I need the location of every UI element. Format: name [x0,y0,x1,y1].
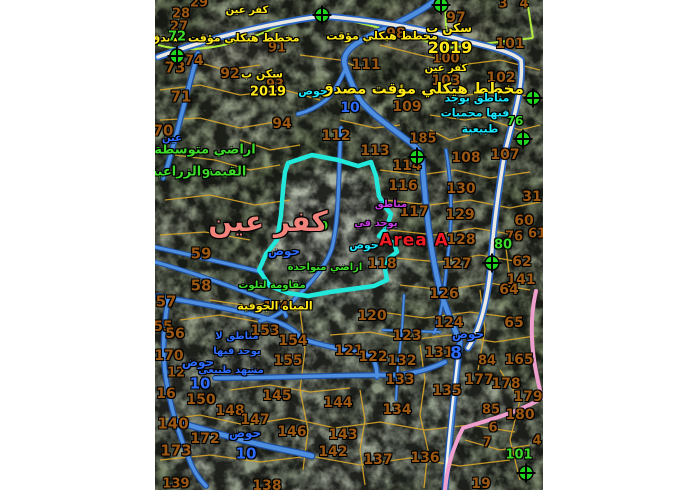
parcel-number: 100 [432,53,459,66]
map-label: 9 [320,220,328,232]
parcel-number: 137 [363,453,392,467]
parcel-number: 142 [318,445,347,459]
land-note-label: مقاومة لتلوث [238,281,305,291]
basin-label: حوض [229,427,261,439]
landscape-note-label: مناطق لا [215,332,258,342]
zoning-label: سكن ب [241,69,283,80]
parcel-number: 130 [446,182,475,196]
parcel-number: 84 [478,355,496,368]
land-note-label: اراضي متواجدة [288,263,363,273]
map-label: 101 [505,449,532,462]
basin-number: 10 [236,447,257,462]
parcel-number: 185 [409,133,436,146]
parcel-number: 12 [167,367,185,380]
survey-marker-icon [516,463,536,483]
nature-reserve-label: طبيعية [462,124,499,135]
parcel-number: 7 [482,437,491,450]
groundwater-label: المياه الجوفية [237,301,312,312]
parcel-number: 60 [514,214,533,228]
parcel-number: 103 [431,74,460,88]
basin-number: 10 [190,377,211,392]
parcel-number: 85 [482,404,500,417]
plan-year-label: 2019 [428,40,473,56]
parcel-number: 76 [505,231,523,244]
parcel-number: 150 [186,393,215,407]
parcel-number: 112 [321,129,350,143]
basin-label: حوض [452,328,484,340]
parcel-number: 128 [446,233,475,247]
parcel-number: 136 [410,451,439,465]
parcel-number: 139 [162,478,189,490]
agri-value-label: القيمة الزراعية [155,166,246,179]
parcel-number: 178 [491,377,520,391]
landscape-note-label: مشهد طبيعي [198,366,264,376]
parcel-number: 109 [392,100,421,114]
village-name-small: كفر عين [226,6,269,16]
survey-marker-icon [312,5,332,25]
parcel-number: 19 [471,477,490,490]
parcel-number: 140 [157,417,188,432]
survey-marker-icon [482,253,502,273]
map-label: 80 [494,239,512,252]
parcel-number: 55 [155,320,173,334]
basin-label: حوض [182,356,214,368]
zone-note-label: مناطق [375,200,407,210]
zone-note-label: يوجد في [354,219,397,229]
parcel-number: 129 [445,208,474,222]
map-labels-layer: 2928277374717091929394979810010110210334… [155,0,543,490]
parcel-number: 108 [451,151,480,165]
parcel-number: 92 [220,67,239,81]
parcel-number: 114 [392,159,421,173]
map-label: 76 [507,115,524,127]
parcel-number: 135 [432,384,461,398]
parcel-number: 120 [357,309,386,323]
parcel-number: 94 [272,117,291,131]
map-viewport: 2928277374717091929394979810010110210334… [0,0,700,490]
parcel-number: 121 [334,344,363,358]
survey-marker-icon [407,147,427,167]
basin-number: 8 [450,346,462,363]
parcel-number: 71 [171,90,192,105]
parcel-number: 101 [495,37,524,51]
parcel-number: 59 [191,247,212,262]
satellite-map[interactable]: 2928277374717091929394979810010110210334… [155,0,543,490]
basin-number: 10 [340,101,359,115]
parcel-number: 91 [268,42,286,55]
landscape-note-label: يوجد فيها [213,347,260,357]
parcel-number: 29 [190,0,208,10]
village-name-small: كفر عين [425,64,468,74]
parcel-number: 144 [323,396,352,410]
parcel-number: 70 [155,124,173,139]
map-label: 72 [168,31,186,44]
parcel-number: 16 [156,387,175,401]
parcel-number: 116 [388,179,417,193]
parcel-number: 122 [358,350,387,364]
parcel-number: 179 [513,390,542,404]
nature-reserve-label: مناطق يوجد [445,93,510,104]
parcel-number: 170 [155,349,184,363]
parcel-number: 124 [434,316,463,330]
parcel-number: 6 [488,422,497,435]
survey-marker-icon [431,0,451,15]
plan-status-label: مخطط هيكلي مؤقت مصدق [155,33,300,44]
parcel-number: 4 [519,0,528,11]
parcel-number: 131 [424,346,453,360]
survey-marker-icon [167,46,187,66]
parcel-number: 143 [328,428,357,442]
parcel-number: 148 [215,404,244,418]
parcel-number: 27 [170,21,188,34]
parcel-number: 123 [392,329,421,343]
parcel-number: 58 [191,279,212,294]
parcel-number: 172 [190,432,219,446]
parcel-number: 73 [165,61,186,76]
map-label: عين [162,134,182,144]
parcel-number: 134 [382,403,411,417]
parcel-number: 146 [277,425,306,439]
parcel-number: 3 [498,0,507,11]
plan-status-label: مخطط هيكلي مؤقت مصدق [320,82,524,97]
parcel-number: 153 [250,324,279,338]
parcel-number: 56 [165,327,184,341]
parcel-number: 145 [262,389,291,403]
basin-label: حوض [298,86,328,97]
survey-marker-icon [513,129,533,149]
map-label: 9 [202,168,210,180]
parcel-number: 31 [522,190,541,204]
parcel-number: 4 [532,435,541,448]
plan-year-label: 2019 [250,86,286,99]
basin-label: حوض [349,240,379,251]
survey-marker-icon [523,88,543,108]
parcel-number: 126 [429,287,458,301]
parcel-number: 107 [490,148,519,162]
parcel-number: 102 [486,71,515,85]
parcel-number: 138 [252,479,281,490]
parcel-number: 118 [367,257,396,271]
parcel-number: 97 [446,11,465,25]
parcel-number: 74 [184,54,203,68]
agri-value-label: اراضي متوسطة [155,144,256,157]
parcel-number: 117 [399,205,428,219]
parcel-number: 155 [273,354,302,368]
parcel-number: 64 [499,283,518,297]
parcel-number: 62 [512,255,531,269]
parcel-number: 57 [156,295,177,310]
village-name-label: كفر عين [208,208,327,236]
parcel-number: 93 [266,79,284,92]
parcel-number: 111 [351,58,380,72]
parcel-number: 177 [464,373,493,387]
parcel-number: 61 [528,228,543,241]
parcel-number: 98 [386,27,405,41]
parcel-number: 132 [387,354,416,368]
parcel-number: 173 [160,444,191,459]
nature-reserve-label: فيها محميات [441,108,510,119]
parcel-number: 113 [360,144,389,158]
parcel-number: 180 [505,408,534,422]
parcel-number: 147 [240,413,269,427]
parcel-number: 28 [172,8,190,21]
parcel-number: 174 [263,300,288,312]
parcel-number: 65 [504,316,523,330]
parcel-number: 127 [442,257,471,271]
area-a-label: Area A [379,233,449,250]
basin-label: حوض [268,245,300,257]
plan-status-label: مخطط هيكلي مؤقت [326,31,438,42]
parcel-number: 133 [385,373,414,387]
parcel-number: 154 [278,334,307,348]
parcel-number: 141 [506,273,535,287]
zoning-label: سكن ب [426,22,472,34]
parcel-number: 165 [504,353,533,367]
